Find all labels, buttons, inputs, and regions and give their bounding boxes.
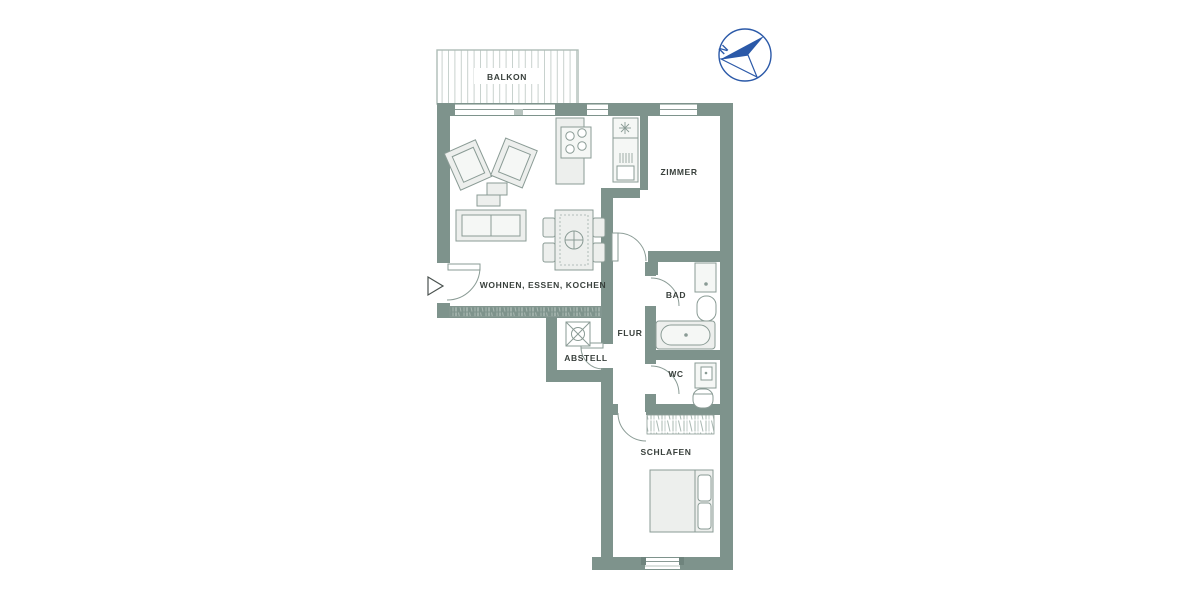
dining-chair [543, 243, 555, 262]
room-label-zimmer: ZIMMER [660, 167, 697, 177]
zimmer-door-leaf [612, 233, 618, 261]
kitchen [556, 118, 638, 184]
compass-icon: N [717, 29, 771, 81]
wall-bottom-corner-pier [592, 557, 603, 570]
room-label-bad: BAD [666, 290, 686, 300]
wardrobe [647, 415, 714, 434]
entrance-door [428, 263, 480, 303]
wall-right [720, 103, 733, 570]
bathroom-fixtures [656, 263, 716, 349]
room-label-flur: FLUR [617, 328, 642, 338]
wall-schlafen-north-pier [601, 404, 618, 415]
living-sideboard [450, 307, 601, 317]
bed [650, 470, 713, 532]
wc-sink [695, 363, 716, 388]
pillow [698, 475, 711, 501]
coffee-table-lower [477, 195, 500, 206]
wc-fixtures [693, 363, 716, 408]
entrance-door-leaf [448, 264, 480, 270]
wall-corridor-west-lower [601, 368, 613, 557]
dining-chair [543, 218, 555, 237]
wall-bad-west-upper [645, 262, 656, 276]
window-zimmer-north [660, 104, 697, 115]
zimmer-door [612, 233, 646, 261]
coffee-table-upper [487, 183, 507, 195]
room-label-schlafen: SCHLAFEN [640, 447, 691, 457]
cooktop-burner [578, 142, 586, 150]
armchair-left [444, 140, 491, 190]
room-label-abstell: ABSTELL [564, 353, 607, 363]
cooktop-burner [578, 129, 586, 137]
window-living-north [455, 104, 555, 115]
room-label-balkon: BALKON [487, 72, 527, 82]
armchair-right [491, 138, 538, 188]
toilet [693, 389, 713, 408]
washing-machine [566, 322, 590, 346]
cooktop-burner [566, 132, 574, 140]
wall-corridor-west-upper [601, 188, 613, 344]
dining-table [543, 210, 605, 270]
washbasin [697, 296, 716, 321]
dining-chair [593, 218, 605, 237]
room-label-wohnen: WOHNEN, ESSEN, KOCHEN [480, 280, 606, 290]
kitchen-island [556, 118, 591, 184]
zimmer-door-arc [618, 233, 646, 261]
wall-kitchen-niche-east [640, 116, 648, 190]
pillow [698, 503, 711, 529]
balcony: BALKON [437, 50, 578, 104]
floor-plan-drawing: BALKON [0, 0, 1200, 600]
wall-kitchen-niche-south [601, 188, 640, 198]
schlafen-door-arc [618, 413, 646, 441]
shower [695, 263, 716, 292]
floor-plan-page: BALKON [0, 0, 1200, 600]
dining-chair [593, 243, 605, 262]
bedroom-furniture [647, 415, 714, 532]
wall-bad-wc [645, 350, 720, 360]
cooktop-burner [566, 145, 574, 153]
wall-wc-west-upper [645, 350, 656, 364]
entrance-door-arc [447, 267, 480, 300]
kitchen-sink-unit [613, 118, 638, 182]
bathtub [656, 321, 715, 349]
window-kitchen-north [587, 104, 608, 115]
window-schlafen-south [641, 557, 684, 569]
wall-zimmer-south [648, 251, 720, 262]
sofa [456, 210, 526, 241]
room-label-wc: WC [668, 369, 683, 379]
sink-basin [617, 166, 634, 180]
